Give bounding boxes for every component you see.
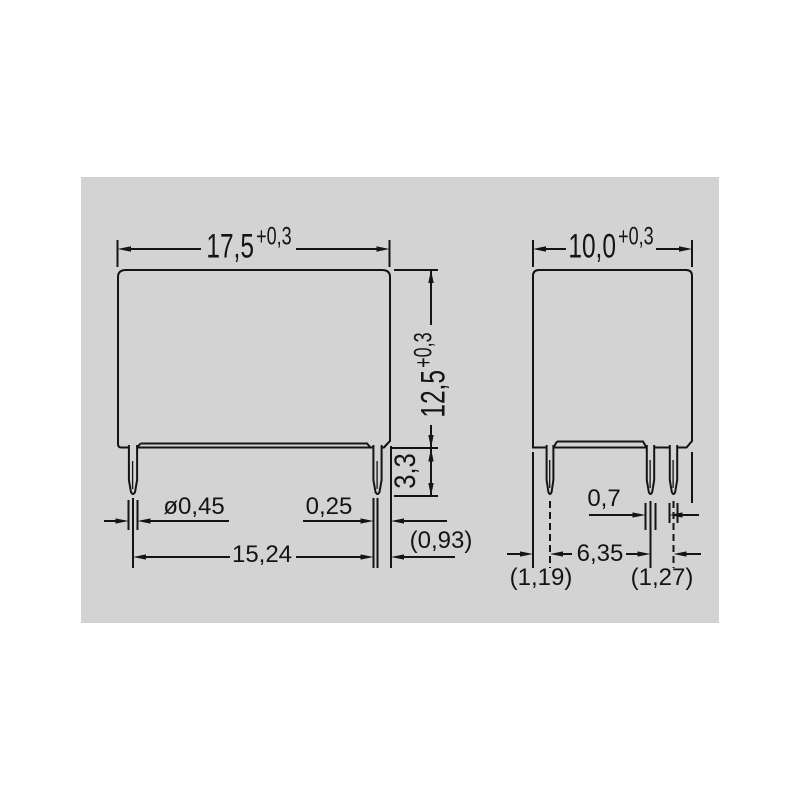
front-edge-offset-dim-label: (0,93)	[410, 529, 473, 553]
front-view-pins	[129, 445, 382, 494]
drawing-linework	[0, 0, 800, 800]
front-width-tolerance: +0,3	[256, 223, 292, 251]
side-view-body	[533, 270, 692, 448]
front-pin-protrusion-dim-label: 3,3	[391, 453, 421, 488]
side-pin-pitch-dim-label: 6,35	[577, 542, 624, 566]
side-pin-width-dim-label: 0,7	[587, 487, 620, 511]
front-pin-diameter-dim-label: ø0,45	[163, 495, 224, 519]
front-width-dim-label: 17,5+0,3	[206, 225, 291, 264]
front-view-body	[118, 270, 390, 448]
dimension-drawing-page: 17,5+0,3 12,5+0,3 3,3 ø0,45 0,25 15,24 (…	[0, 0, 800, 800]
side-width-dim-label: 10,0+0,3	[568, 225, 653, 264]
front-pin-pitch-dim-label: 15,24	[232, 543, 292, 567]
side-width-tolerance: +0,3	[618, 223, 654, 251]
side-left-offset-dim-label: (1,19)	[510, 566, 573, 590]
front-pin-thickness-dim-label: 0,25	[306, 495, 353, 519]
front-pin-pitch-dimension	[133, 554, 455, 559]
front-height-tolerance: +0,3	[410, 332, 438, 368]
side-right-offset-dim-label: (1,27)	[631, 566, 694, 590]
front-height-dim-label: 12,5+0,3	[412, 332, 451, 417]
